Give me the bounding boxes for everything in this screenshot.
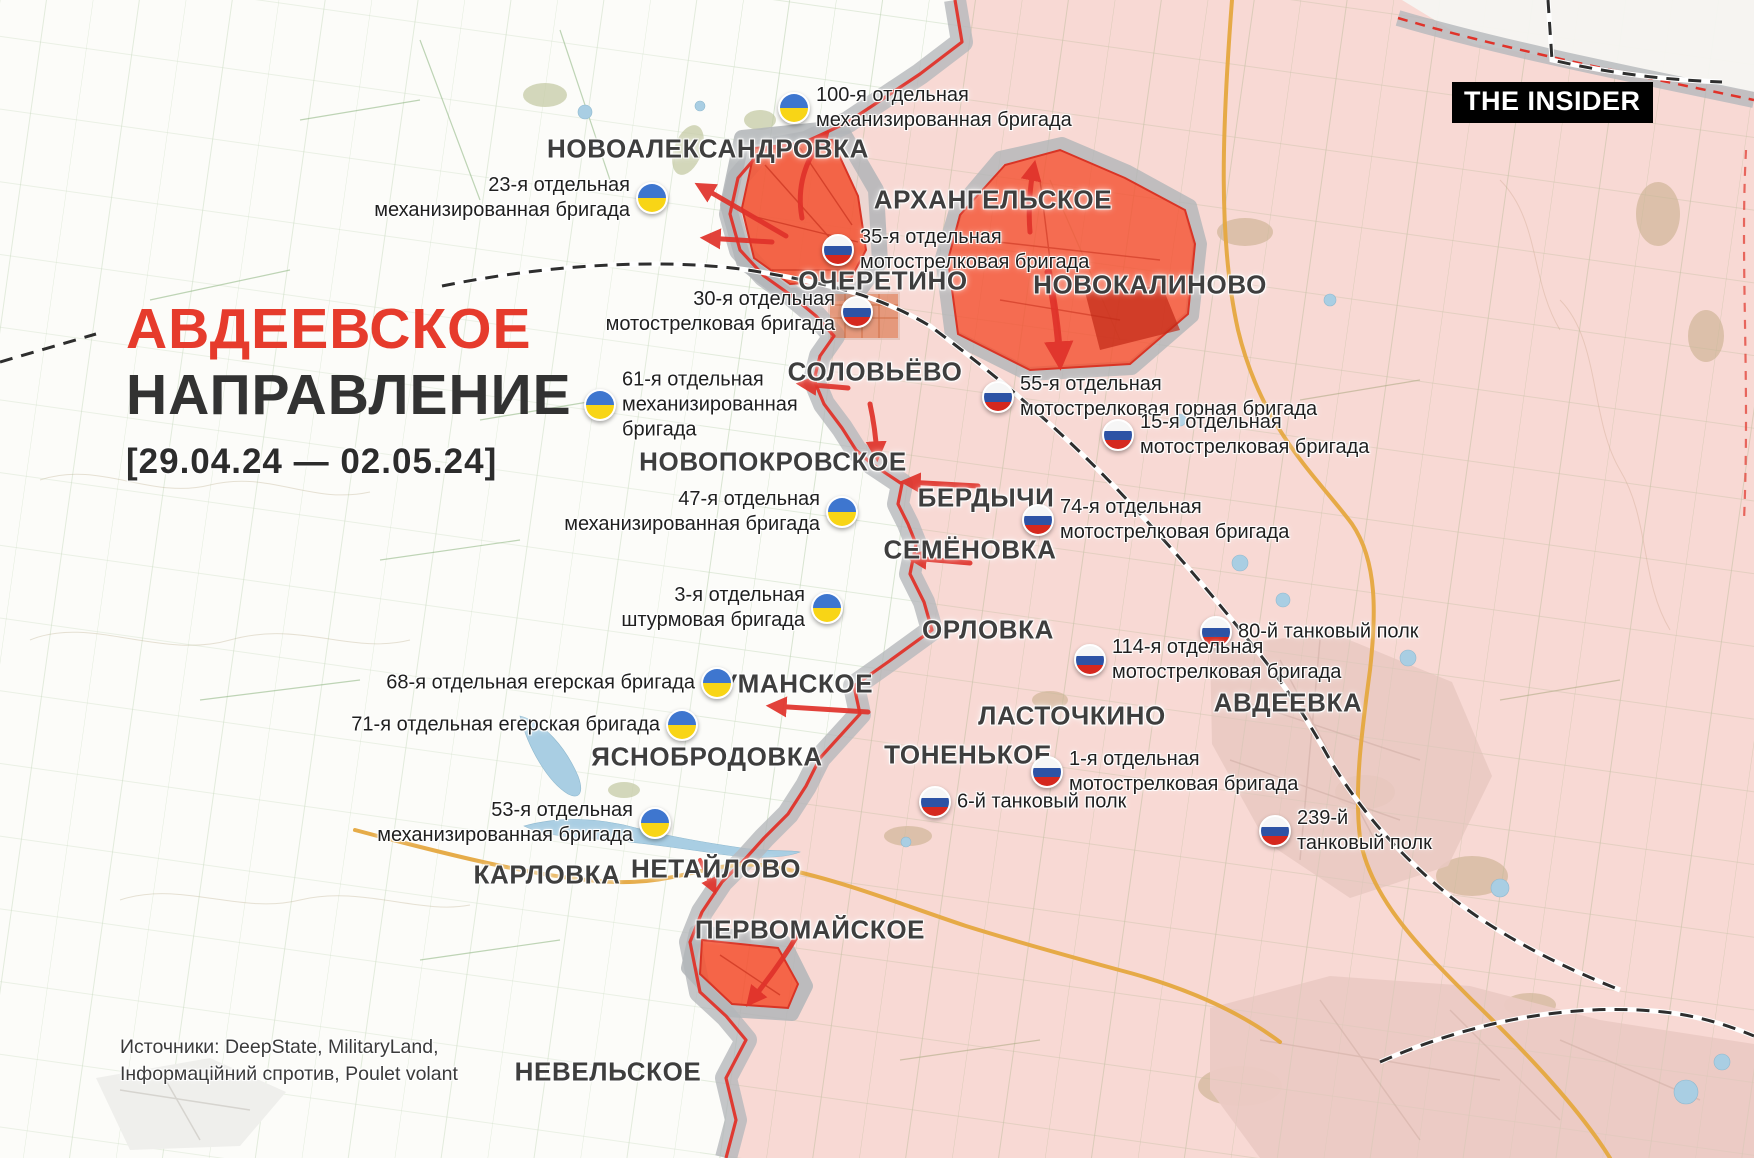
unit-label-line: 53-я отдельная (377, 798, 633, 823)
place-label: ТОНЕНЬКОЕ (884, 740, 1052, 771)
place-label: НОВОПОКРОВСКОЕ (639, 447, 907, 478)
place-label: АРХАНГЕЛЬСКОЕ (874, 185, 1112, 216)
unit-label: 3-я отдельнаяштурмовая бригада (621, 583, 805, 633)
unit-label-line: 23-я отдельная (374, 173, 630, 198)
map-title-line1: АВДЕЕВСКОЕ (126, 300, 572, 360)
unit-label-line: 3-я отдельная (621, 583, 805, 608)
sources-line2: Інформаційний спротив, Poulet volant (120, 1061, 458, 1088)
place-label: ОРЛОВКА (922, 615, 1054, 646)
unit-label-line: механизированная бригада (816, 108, 1072, 133)
unit-label-line: 61-я отдельная (622, 368, 798, 393)
map-title-line2: НАПРАВЛЕНИЕ (126, 366, 572, 426)
unit-label-line: механизированная бригада (377, 823, 633, 848)
unit-label-line: мотострелковая бригада (1140, 435, 1369, 460)
unit-label-line: 71-я отдельная егерская бригада (351, 713, 660, 738)
place-label: УМАНСКОЕ (721, 669, 873, 700)
place-label: НЕТАЙЛОВО (631, 854, 801, 885)
unit-label: 6-й танковый полк (957, 790, 1126, 815)
unit-label-line: 30-я отдельная (606, 287, 835, 312)
unit-label-line: мотострелковая бригада (1060, 520, 1289, 545)
unit-label: 71-я отдельная егерская бригада (351, 713, 660, 738)
unit-label: 53-я отдельнаямеханизированная бригада (377, 798, 633, 848)
unit-label-line: 15-я отдельная (1140, 410, 1369, 435)
unit-label-line: 74-я отдельная (1060, 495, 1289, 520)
unit-label-line: 55-я отдельная (1020, 372, 1317, 397)
unit-label: 23-я отдельнаямеханизированная бригада (374, 173, 630, 223)
unit-label-line: 114-я отдельная (1112, 635, 1341, 660)
brand-logo-text: THE INSIDER (1464, 86, 1641, 116)
russia-flag-icon (982, 381, 1014, 413)
unit-label: 15-я отдельнаямотострелковая бригада (1140, 410, 1369, 460)
unit-label-line: мотострелковая бригада (860, 250, 1089, 275)
unit-label: 68-я отдельная егерская бригада (386, 671, 695, 696)
unit-label: 74-я отдельнаямотострелковая бригада (1060, 495, 1289, 545)
place-label: АВДЕЕВКА (1214, 688, 1363, 719)
unit-label-line: 239-й (1297, 806, 1432, 831)
unit-label-line: 68-я отдельная егерская бригада (386, 671, 695, 696)
unit-label: 35-я отдельнаямотострелковая бригада (860, 225, 1089, 275)
place-label: ЛАСТОЧКИНО (978, 701, 1166, 732)
place-label: СЕМЁНОВКА (884, 535, 1057, 566)
unit-label-line: бригада (622, 418, 798, 443)
russia-flag-icon (1259, 815, 1291, 847)
unit-label-line: 6-й танковый полк (957, 790, 1126, 815)
topographic-map-graphic (0, 0, 1754, 1158)
place-label: ПЕРВОМАЙСКОЕ (695, 915, 925, 946)
russia-flag-icon (919, 786, 951, 818)
unit-label-line: механизированная (622, 393, 798, 418)
unit-label: 47-я отдельнаямеханизированная бригада (564, 487, 820, 537)
unit-label: 100-я отдельнаямеханизированная бригада (816, 83, 1072, 133)
ukraine-flag-icon (826, 496, 858, 528)
brand-logo: THE INSIDER (1452, 82, 1653, 123)
unit-label: 61-я отдельнаямеханизированнаябригада (622, 368, 798, 443)
unit-label-line: танковый полк (1297, 831, 1432, 856)
ukraine-flag-icon (639, 807, 671, 839)
unit-label-line: 1-я отдельная (1069, 747, 1298, 772)
date-range: [29.04.24 — 02.05.24] (126, 444, 572, 481)
russia-flag-icon (822, 234, 854, 266)
unit-label: 30-я отдельнаямотострелковая бригада (606, 287, 835, 337)
place-label: КАРЛОВКА (473, 860, 620, 891)
unit-label-line: 100-я отдельная (816, 83, 1072, 108)
map-canvas: АВДЕЕВСКОЕ НАПРАВЛЕНИЕ [29.04.24 — 02.05… (0, 0, 1754, 1158)
russia-flag-icon (1074, 644, 1106, 676)
place-label: ЯСНОБРОДОВКА (591, 742, 822, 773)
russia-flag-icon (841, 296, 873, 328)
ukraine-flag-icon (666, 709, 698, 741)
place-label: НОВОАЛЕКСАНДРОВКА (547, 134, 869, 165)
unit-label-line: механизированная бригада (374, 198, 630, 223)
unit-label-line: мотострелковая бригада (606, 312, 835, 337)
ukraine-flag-icon (584, 389, 616, 421)
unit-label-line: 47-я отдельная (564, 487, 820, 512)
unit-label-line: механизированная бригада (564, 512, 820, 537)
place-label: СОЛОВЬЁВО (788, 357, 963, 388)
russia-flag-icon (1022, 504, 1054, 536)
russia-flag-icon (1102, 419, 1134, 451)
unit-label: 239-йтанковый полк (1297, 806, 1432, 856)
sources-note: Источники: DeepState, MilitaryLand, Інфо… (120, 1034, 458, 1088)
sources-line1: Источники: DeepState, MilitaryLand, (120, 1034, 458, 1061)
unit-label: 114-я отдельнаямотострелковая бригада (1112, 635, 1341, 685)
ukraine-flag-icon (778, 92, 810, 124)
russia-flag-icon (1031, 756, 1063, 788)
map-title-block: АВДЕЕВСКОЕ НАПРАВЛЕНИЕ [29.04.24 — 02.05… (126, 300, 572, 480)
ukraine-flag-icon (701, 667, 733, 699)
place-label: НЕВЕЛЬСКОЕ (515, 1057, 702, 1088)
ukraine-flag-icon (811, 592, 843, 624)
unit-label-line: штурмовая бригада (621, 608, 805, 633)
ukraine-flag-icon (636, 182, 668, 214)
unit-label-line: мотострелковая бригада (1112, 660, 1341, 685)
unit-label-line: 35-я отдельная (860, 225, 1089, 250)
